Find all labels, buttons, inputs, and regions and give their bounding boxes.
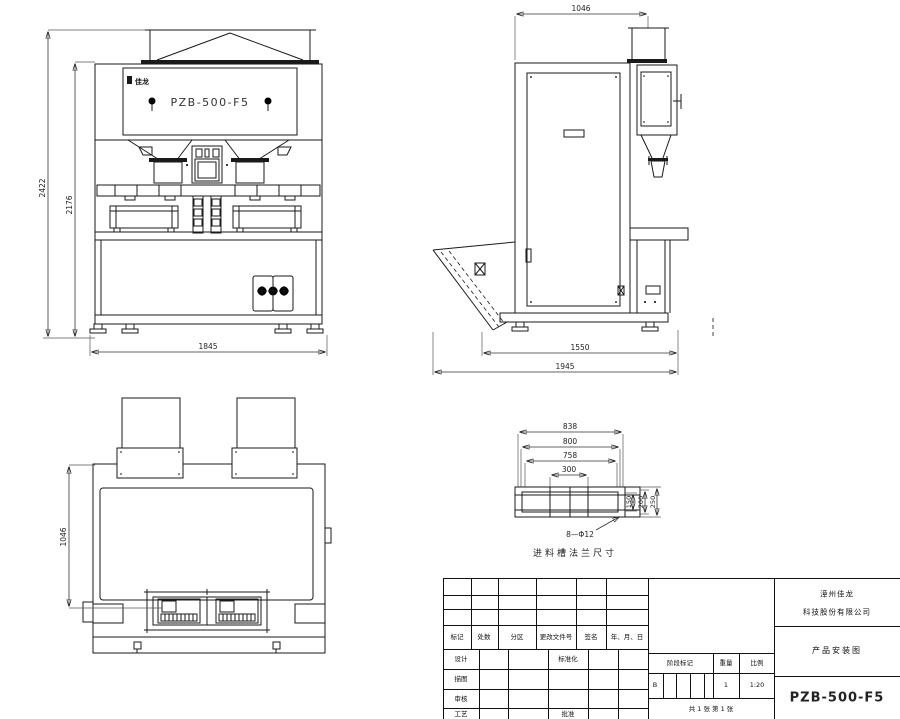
tb-approve: 批准 [562,711,575,718]
brand-logo-mark [127,76,132,84]
tb-row-process: 工艺 [455,711,468,718]
weigh-hopper-right [236,162,264,183]
tb-row-trace: 描图 [455,676,468,683]
dim-flange-h2: 200 [637,496,645,508]
dim-flange-w3: 758 [563,451,578,460]
tb-header-sign: 签名 [585,634,598,641]
platform-right [233,206,301,228]
dim-front-height-overall: 2422 [38,178,47,197]
dim-front-height-body: 2176 [65,195,74,214]
tb-stage-label: 阶段标记 [667,660,693,667]
dim-side-top: 1046 [571,4,590,13]
inlet-flange [141,60,319,64]
tb-header-date: 年、月、日 [611,634,644,641]
dim-side-depth-body: 1550 [570,343,589,352]
dim-top-depth: 1046 [59,527,68,546]
tb-stage-value: B [653,682,657,689]
cabinet [515,63,630,313]
tb-row-design: 设计 [455,656,468,663]
cabinet-door [527,73,620,306]
hopper-right [237,398,295,448]
tb-scale-value: 1:20 [750,682,765,689]
top-handle-tab [325,528,331,543]
title-block: 标记 处数 分区 更改文件号 签名 年、月、日 设计 描图 审核 工艺 标准化 … [443,578,900,719]
feet-front [90,324,323,333]
weigher-detail [144,589,270,633]
dim-flange-w2: 800 [563,437,578,446]
tb-weight-value: 1 [724,682,728,689]
tb-weight-label: 重量 [720,660,733,667]
platform-left [110,206,178,228]
side-view: 1046 [415,0,715,390]
tb-header-mark: 标记 [451,634,464,641]
weigh-hopper-left [154,162,182,183]
flange-holes-label: 8—Φ12 [566,530,594,539]
tb-row-check: 审核 [455,696,468,703]
model-label: PZB-500-F5 [171,96,250,109]
brand-logo-text: 佳龙 [135,77,149,86]
drawing-canvas: 2422 2176 佳龙 PZB-500-F5 [0,0,900,719]
tb-company-line2: 科技股份有限公司 [803,608,871,616]
dim-front-width: 1845 [198,342,217,351]
tb-drawing-number: PZB-500-F5 [790,692,885,705]
bag-chute [433,242,515,330]
dim-flange-w1: 838 [563,422,578,431]
flange-caption: 进料槽法兰尺寸 [533,546,617,559]
tb-sheet-info: 共 1 张 第 1 张 [689,706,734,713]
tb-scale-label: 比例 [751,660,764,667]
tb-header-docno: 更改文件号 [540,634,573,641]
dim-side-depth-overall: 1945 [555,362,574,371]
top-view: 1046 [45,385,345,675]
side-display [646,286,660,294]
discharge-bucket [651,161,665,177]
feet-side [512,322,658,331]
door-vent [564,130,584,137]
tb-drawing-title: 产品安装图 [812,647,862,655]
front-view: 2422 2176 佳龙 PZB-500-F5 [35,5,335,365]
dim-flange-h3: 250 [649,496,657,508]
hopper-left [122,398,180,448]
tb-header-zone: 分区 [511,634,524,641]
dim-flange-w4: 300 [562,465,577,474]
dim-flange-h1: 150 [625,496,633,508]
tb-header-count: 处数 [478,634,491,641]
control-screen [198,162,216,178]
tb-standardize: 标准化 [558,656,578,663]
tb-company-line1: 漳州佳龙 [820,590,854,598]
